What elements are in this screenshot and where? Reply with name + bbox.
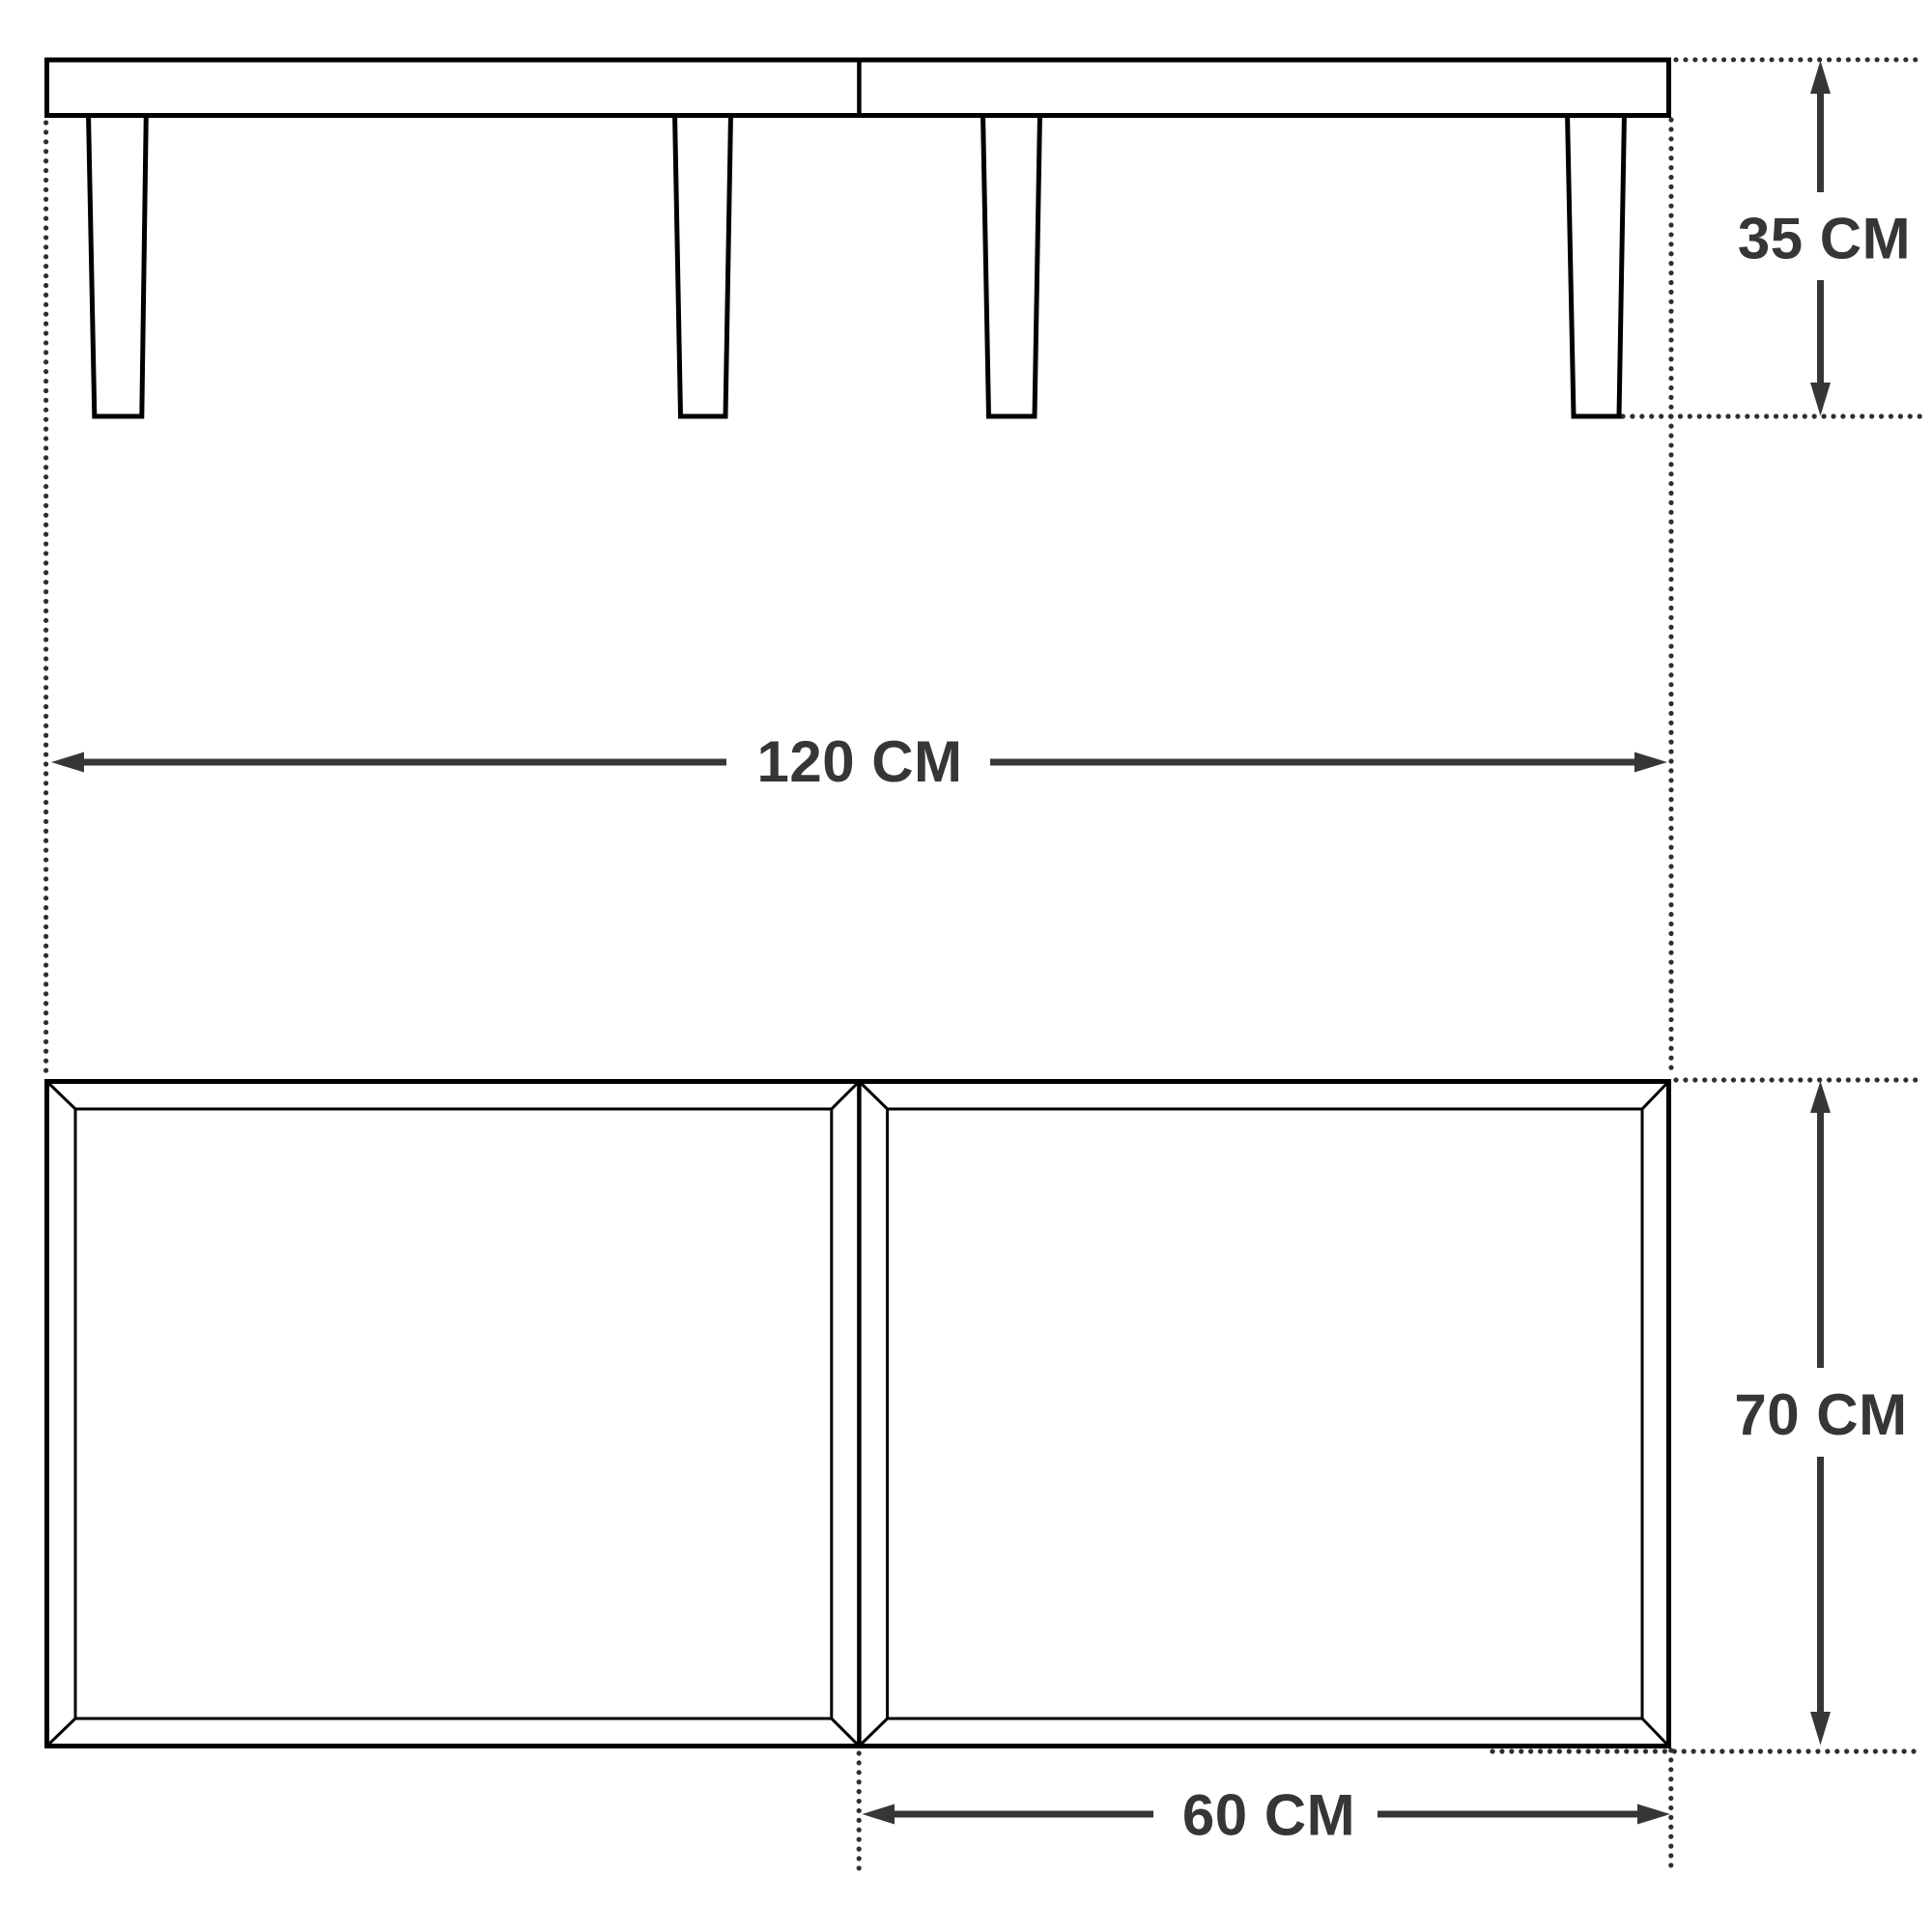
svg-text:70 CM: 70 CM xyxy=(1734,1382,1907,1447)
svg-text:60 CM: 60 CM xyxy=(1182,1783,1355,1848)
svg-text:35 CM: 35 CM xyxy=(1738,207,1911,271)
svg-text:120 CM: 120 CM xyxy=(756,729,962,794)
